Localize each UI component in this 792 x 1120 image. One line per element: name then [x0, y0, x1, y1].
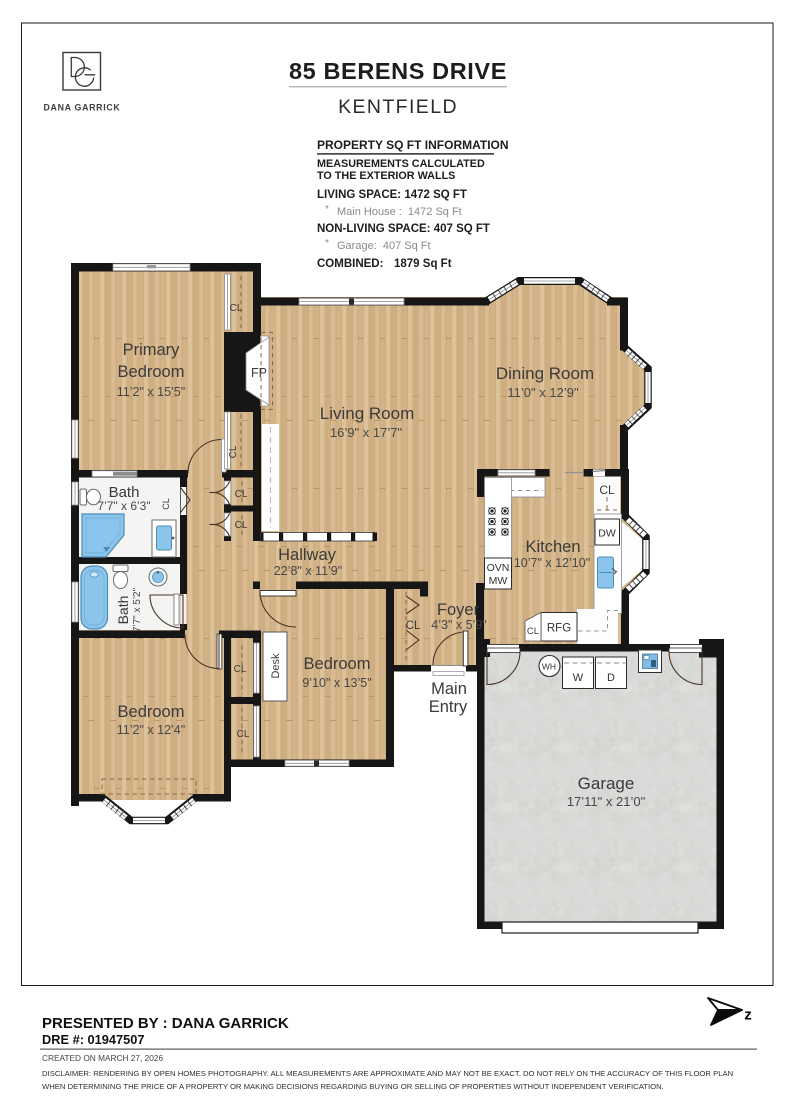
svg-text:CL: CL	[161, 498, 171, 510]
svg-text:Garage: Garage	[578, 774, 635, 793]
svg-text:CL: CL	[228, 445, 239, 458]
svg-text:DRE #: 01947507: DRE #: 01947507	[42, 1032, 144, 1047]
svg-text:NON-LIVING SPACE: 407 SQ FT: NON-LIVING SPACE: 407 SQ FT	[317, 223, 490, 235]
svg-text:DISCLAIMER: RENDERING BY OPEN: DISCLAIMER: RENDERING BY OPEN HOMES PHOT…	[42, 1069, 733, 1078]
svg-text:Garage: 407 Sq Ft: Garage: 407 Sq Ft	[337, 240, 431, 252]
svg-text:CL: CL	[234, 664, 247, 675]
svg-text:RFG: RFG	[547, 623, 571, 635]
svg-text:Entry: Entry	[429, 698, 468, 716]
svg-text:22’8" x 11’9": 22’8" x 11’9"	[274, 564, 342, 578]
svg-text:*: *	[325, 204, 329, 215]
svg-text:COMBINED:: COMBINED:	[317, 258, 383, 270]
svg-text:CL: CL	[527, 626, 539, 637]
svg-text:MW: MW	[489, 575, 508, 587]
svg-text:17’11" x 21’0": 17’11" x 21’0"	[567, 794, 646, 809]
svg-text:11’2" x 15’5": 11’2" x 15’5"	[117, 385, 185, 399]
svg-text:MEASUREMENTS CALCULATED: MEASUREMENTS CALCULATED	[317, 158, 485, 170]
svg-text:CL: CL	[235, 489, 248, 500]
svg-text:Bedroom: Bedroom	[118, 363, 185, 381]
svg-text:TO THE EXTERIOR WALLS: TO THE EXTERIOR WALLS	[317, 170, 455, 182]
svg-text:WHEN DETERMINING THE PRICE OF: WHEN DETERMINING THE PRICE OF A PROPERTY…	[42, 1082, 664, 1091]
svg-text:FP: FP	[251, 366, 267, 380]
svg-text:KENTFIELD: KENTFIELD	[338, 96, 458, 118]
svg-text:DANA GARRICK: DANA GARRICK	[44, 103, 121, 113]
svg-text:CL: CL	[406, 620, 421, 632]
svg-text:Bedroom: Bedroom	[304, 655, 371, 673]
svg-text:CREATED ON MARCH 27, 2026: CREATED ON MARCH 27, 2026	[42, 1053, 163, 1063]
svg-text:Living Room: Living Room	[320, 404, 415, 423]
svg-text:Bedroom: Bedroom	[118, 703, 185, 721]
svg-text:11’0" x 12’9": 11’0" x 12’9"	[507, 385, 579, 400]
svg-text:CL: CL	[235, 520, 248, 531]
svg-text:Main House : 1472 Sq Ft: Main House : 1472 Sq Ft	[337, 206, 462, 218]
svg-text:OVN: OVN	[487, 562, 510, 574]
svg-text:PROPERTY SQ FT INFORMATION: PROPERTY SQ FT INFORMATION	[317, 138, 509, 152]
svg-text:Foyer: Foyer	[437, 601, 480, 619]
svg-text:10’7" x 12’10": 10’7" x 12’10"	[514, 556, 590, 570]
svg-text:Kitchen: Kitchen	[525, 538, 580, 556]
svg-text:Desk: Desk	[270, 653, 282, 679]
svg-text:85 BERENS DRIVE: 85 BERENS DRIVE	[289, 58, 507, 84]
svg-text:D: D	[607, 672, 615, 684]
svg-text:4’3" x 5’9": 4’3" x 5’9"	[431, 618, 486, 632]
svg-text:CL: CL	[230, 303, 243, 314]
svg-text:Primary: Primary	[123, 341, 181, 359]
svg-text:7’7" x 5’2": 7’7" x 5’2"	[132, 587, 143, 632]
svg-text:LIVING SPACE: 1472 SQ FT: LIVING SPACE: 1472 SQ FT	[317, 189, 467, 201]
svg-text:Bath: Bath	[115, 596, 131, 625]
svg-text:WH: WH	[542, 662, 556, 672]
svg-text:PRESENTED BY : DANA GARRICK: PRESENTED BY : DANA GARRICK	[42, 1015, 289, 1032]
svg-text:16’9" x 17’7": 16’9" x 17’7"	[330, 425, 402, 440]
svg-text:*: *	[325, 238, 329, 249]
svg-text:CL: CL	[599, 483, 615, 497]
svg-text:11’2" x 12’4": 11’2" x 12’4"	[117, 723, 185, 737]
svg-text:Dining Room: Dining Room	[496, 364, 594, 383]
svg-text:CL: CL	[237, 729, 250, 740]
svg-text:7’7" x 6’3": 7’7" x 6’3"	[97, 499, 150, 513]
svg-text:9’10" x 13’5": 9’10" x 13’5"	[302, 676, 371, 690]
svg-text:Main: Main	[431, 680, 467, 698]
svg-text:z: z	[744, 1007, 752, 1024]
svg-text:DW: DW	[598, 528, 616, 540]
svg-text:W: W	[573, 672, 584, 684]
svg-text:Hallway: Hallway	[278, 546, 337, 564]
svg-text:1879 Sq Ft: 1879 Sq Ft	[394, 258, 452, 270]
